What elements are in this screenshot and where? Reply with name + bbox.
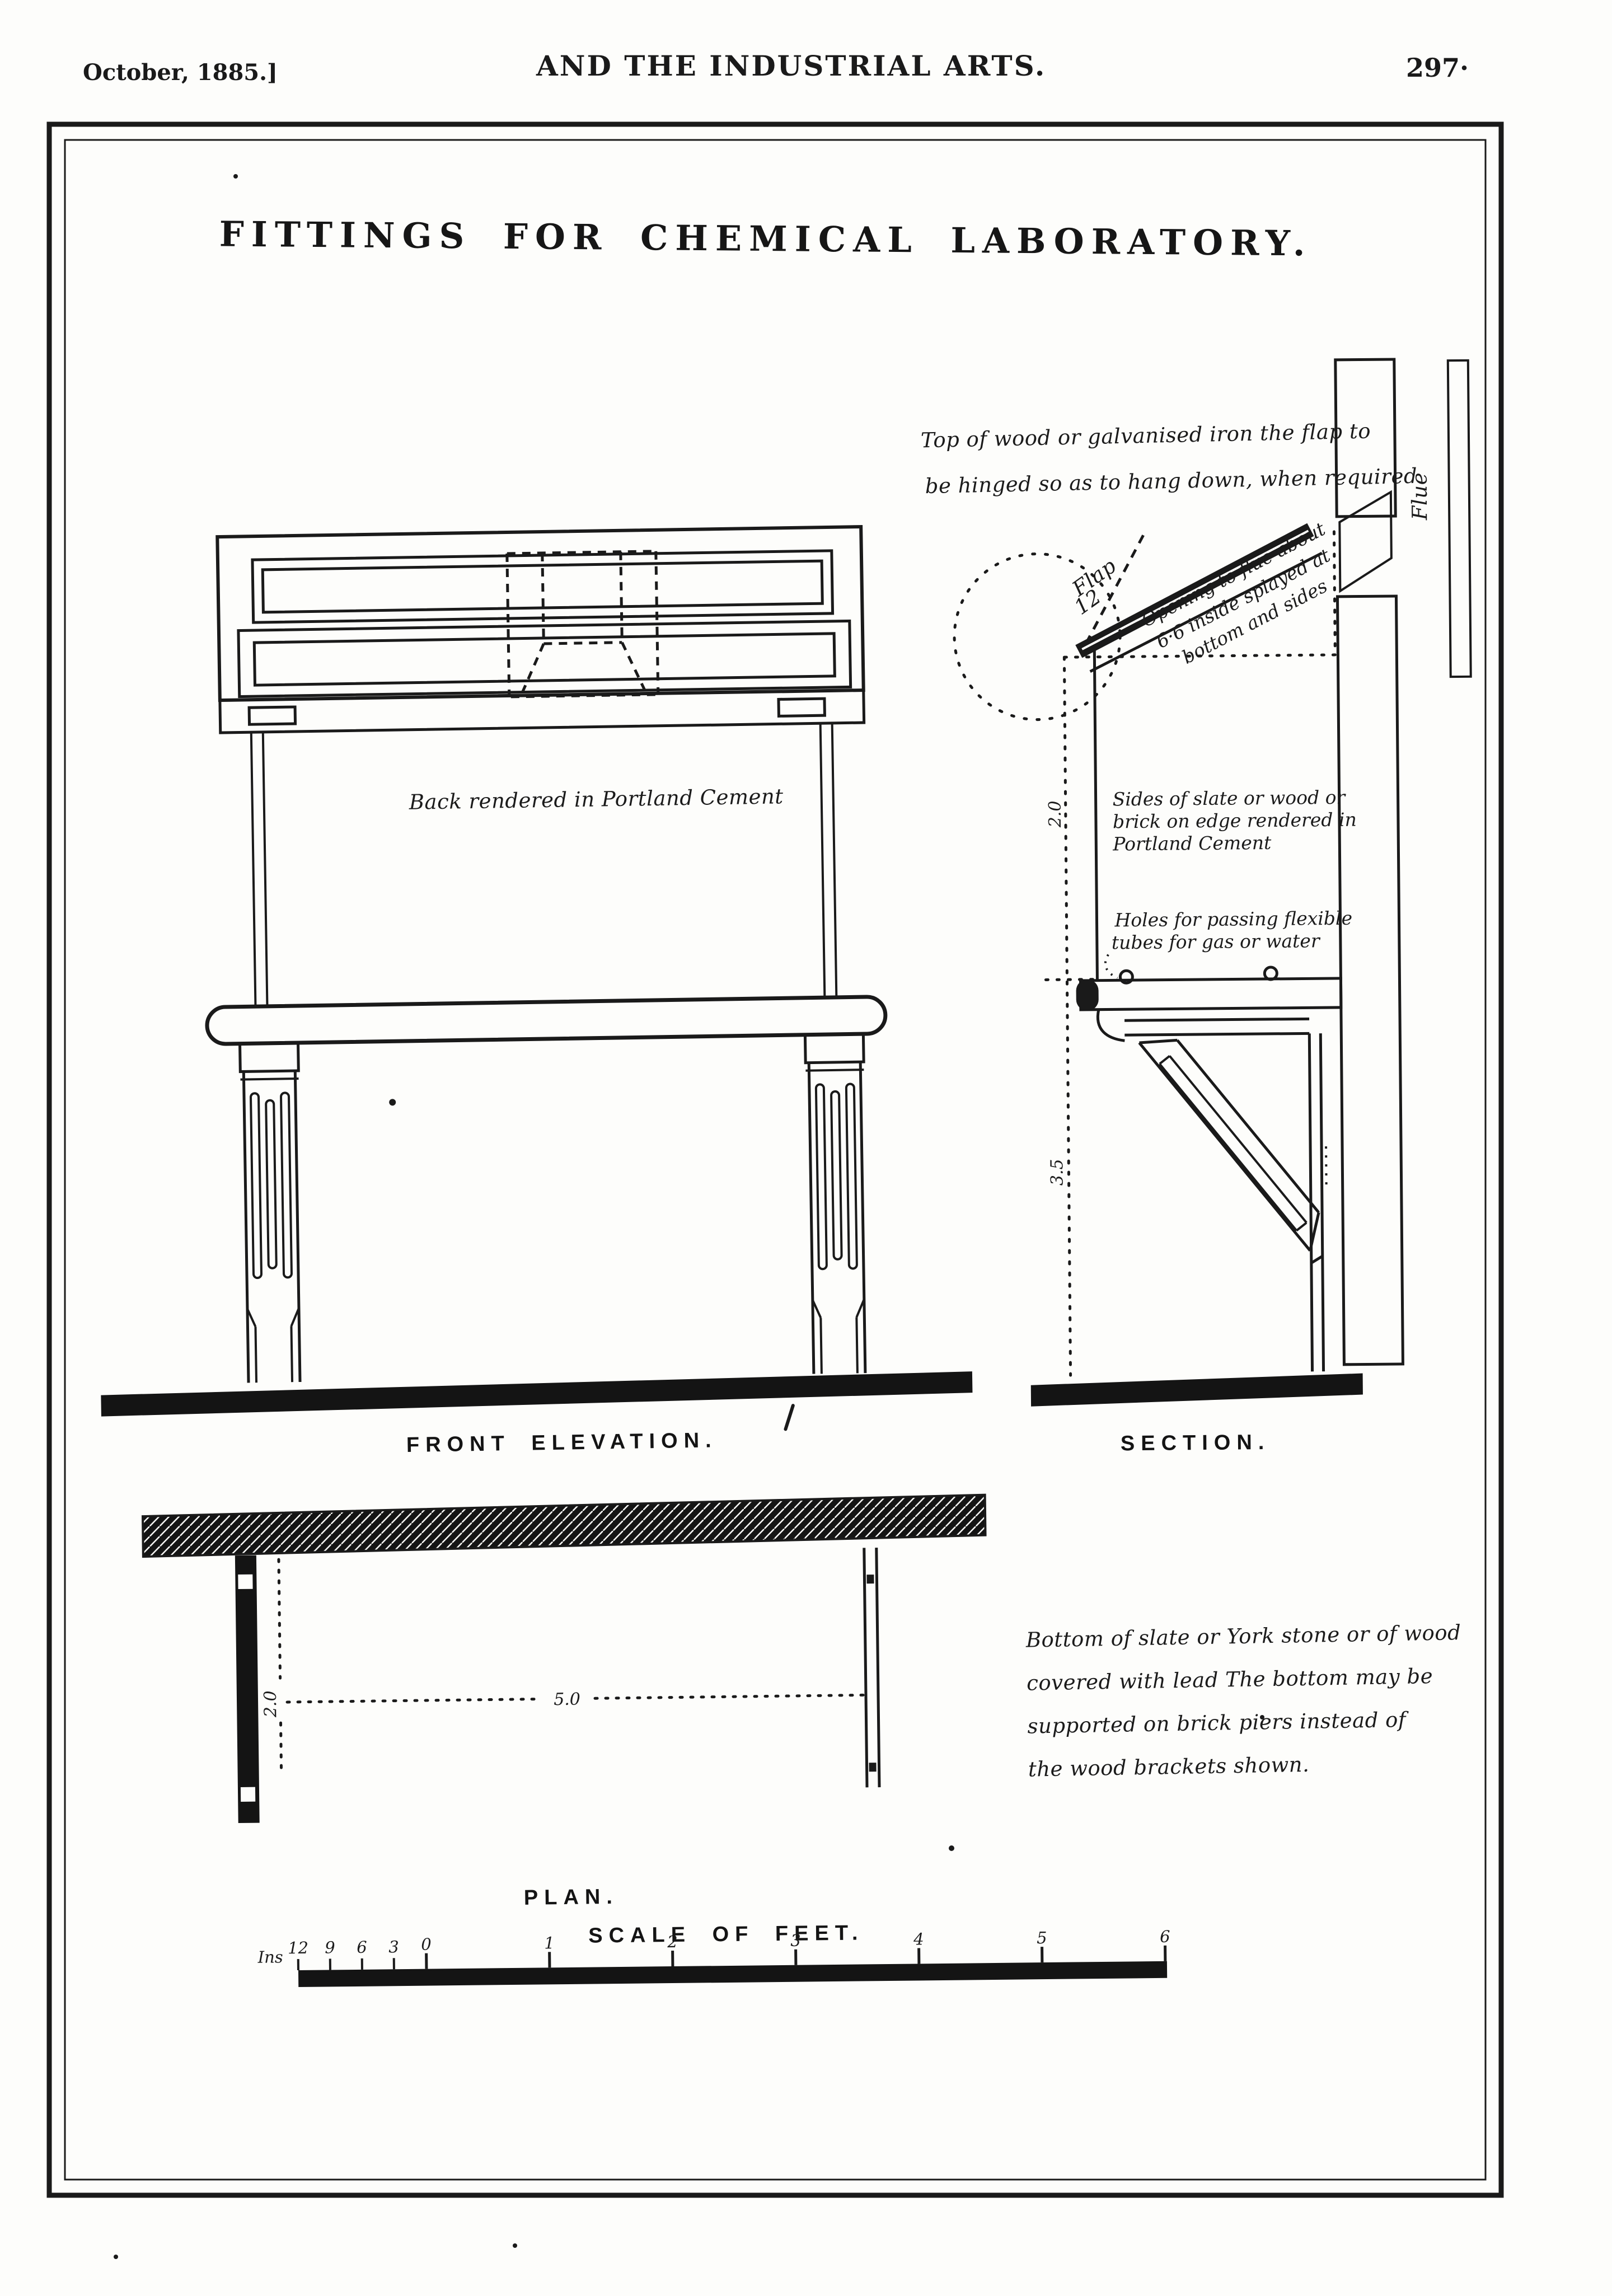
ink-speck	[233, 174, 238, 179]
turned-leg-right	[805, 1034, 869, 1374]
leg-slot	[831, 1091, 842, 1259]
holes-note-line1: Holes for passing flexible	[1114, 907, 1352, 931]
inch-tick-label: 0	[421, 1935, 432, 1954]
dim-lower: 3.5	[1047, 1159, 1067, 1186]
flue-duct-through-wall	[1339, 492, 1392, 591]
front-elevation-label: FRONT ELEVATION.	[406, 1428, 718, 1457]
leg-slot	[281, 1093, 292, 1277]
bench-slab-section	[1080, 978, 1341, 1010]
plan-depth-dim: 2.0	[261, 1690, 281, 1718]
leg-slot	[846, 1084, 857, 1268]
leg-slot	[266, 1100, 277, 1268]
sides-note-line1: Sides of slate or wood or	[1112, 786, 1346, 810]
leg-slot	[251, 1093, 261, 1278]
section-label: SECTION.	[1121, 1431, 1271, 1455]
scale-title: SCALE OF FEET.	[588, 1921, 864, 1947]
leg-foot	[813, 1299, 865, 1374]
holes-note: Holes for passing flexible tubes for gas…	[1111, 907, 1352, 954]
leg-block	[805, 1034, 864, 1063]
opening-note: Opening to flue about 6·6 inside splayed…	[1138, 518, 1353, 677]
foot-tick-label: 6	[1160, 1927, 1170, 1946]
wood-bracket	[1098, 1008, 1328, 1374]
ink-speck	[513, 2243, 517, 2248]
foot-tick-label: 3	[790, 1931, 801, 1950]
inch-tick-label: 3	[388, 1937, 399, 1956]
plate-title: FITTINGS FOR CHEMICAL LABORATORY.	[219, 213, 1313, 264]
bench-slab-edge	[207, 996, 885, 1044]
bracket-ogee-moulding	[1098, 1009, 1124, 1041]
leg-block	[240, 1043, 299, 1072]
foot-tick-label: 1	[544, 1933, 555, 1952]
bracket-top-board	[1124, 1019, 1309, 1035]
sides-note-line2: brick on edge rendered in	[1113, 809, 1357, 833]
ground-line-section	[1031, 1374, 1363, 1407]
turned-leg-left	[240, 1043, 304, 1383]
dim-upper: 2.0	[1046, 800, 1065, 828]
bolt-notch	[241, 1787, 255, 1802]
holes-note-line2: tubes for gas or water	[1112, 930, 1321, 953]
plan-view: 2.0 5.0 PLAN.	[143, 1495, 990, 1914]
front-elevation-view: Back rendered in Portland Cement	[87, 525, 973, 1461]
sash-handle-left	[249, 707, 295, 724]
wall-hatch-lower	[1337, 596, 1403, 1365]
inch-tick-label: 6	[357, 1938, 367, 1957]
sides-note-line3: Portland Cement	[1112, 832, 1272, 855]
side-slab-left-plan	[235, 1555, 260, 1823]
inch-tick-marks	[298, 1958, 394, 1970]
plan-length-dim: 5.0	[554, 1690, 580, 1710]
bottom-note-line4: the wood brackets shown.	[1028, 1753, 1310, 1782]
ink-speck	[389, 1099, 396, 1105]
top-note: Top of wood or galvanised iron the flap …	[921, 418, 1418, 499]
slab-nosing	[1076, 980, 1098, 1011]
leg-collar	[241, 1079, 299, 1080]
ink-speck	[949, 1845, 954, 1851]
top-note-line2: be hinged so as to hang down, when requi…	[925, 464, 1417, 498]
bolt-notch	[238, 1575, 252, 1589]
top-note-line1: Top of wood or galvanised iron the flap …	[921, 419, 1371, 452]
scale-bar: SCALE OF FEET. Ins 12 9 6 3 0 1 2 3 4 5 …	[257, 1918, 1170, 1988]
leg-slot	[816, 1084, 827, 1269]
side-slab-right-plan	[864, 1548, 879, 1787]
leg-collar	[805, 1070, 864, 1071]
plan-label: PLAN.	[524, 1885, 619, 1910]
bottom-note-line1: Bottom of slate or York stone or of wood	[1025, 1620, 1461, 1652]
foot-tick-label: 2	[667, 1932, 678, 1951]
leg-foot	[247, 1308, 300, 1383]
ink-speck	[114, 2255, 118, 2259]
wall-in-plan	[143, 1495, 986, 1557]
bottom-note: Bottom of slate or York stone or of wood…	[1025, 1620, 1463, 1782]
border-inner-rule	[65, 140, 1486, 2180]
scanned-page: October, 1885.] AND THE INDUSTRIAL ARTS.…	[0, 0, 1612, 2296]
ins-label: Ins	[257, 1947, 283, 1966]
engraved-plate: FITTINGS FOR CHEMICAL LABORATORY. Top of…	[0, 0, 1612, 2296]
bolt-mark	[866, 1575, 874, 1583]
bracket-hidden-edge	[1326, 1146, 1327, 1190]
bottom-note-line3: supported on brick piers instead of	[1027, 1708, 1409, 1739]
stray-ink-mark	[785, 1405, 794, 1429]
flue-far-wall	[1448, 360, 1471, 677]
inch-tick-label: 9	[325, 1938, 335, 1957]
plan-depth-dim-line	[279, 1559, 282, 1768]
section-view: Flue Flap 12 Opening to flue about 6·6 i…	[952, 359, 1478, 1457]
bottom-note-line2: covered with lead The bottom may be	[1027, 1664, 1433, 1695]
sash-handle-right	[779, 699, 824, 716]
foot-tick-label: 5	[1037, 1928, 1047, 1947]
foot-tick-label: 4	[913, 1929, 924, 1948]
sides-note: Sides of slate or wood or brick on edge …	[1112, 786, 1357, 855]
back-note: Back rendered in Portland Cement	[408, 784, 783, 814]
flue-label: Flue	[1408, 472, 1432, 521]
scale-rule	[298, 1961, 1167, 1987]
ink-speck	[1260, 1715, 1264, 1719]
holes-note-pointer	[1105, 954, 1118, 978]
inch-tick-label: 12	[288, 1938, 308, 1957]
strut-slot	[1160, 1055, 1307, 1231]
side-posts	[251, 723, 837, 1006]
lower-sash-inner	[254, 634, 835, 685]
ground-line-front	[101, 1371, 973, 1416]
bolt-mark	[869, 1763, 876, 1772]
